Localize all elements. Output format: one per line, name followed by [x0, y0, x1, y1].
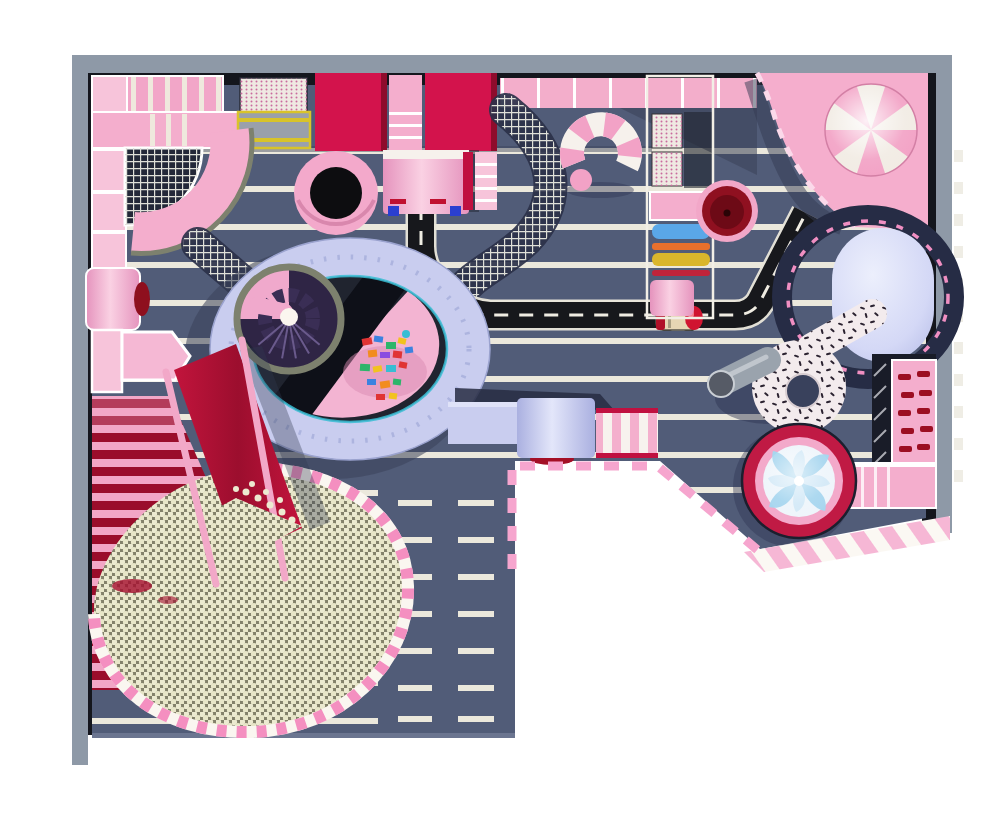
pink-tube-barrel — [383, 150, 497, 216]
giant-pinwheel-lollipop — [825, 84, 917, 176]
yellow-roller — [652, 253, 710, 266]
wall-tube-exit — [86, 268, 150, 330]
red-roller — [652, 270, 710, 276]
red-spinning-bowl — [696, 180, 758, 242]
candy-stripe-roller — [596, 413, 658, 455]
orange-roller — [652, 243, 710, 250]
vertical-bars-panel — [127, 76, 223, 112]
floor-plan-render — [0, 0, 1000, 819]
round-black-trampoline — [294, 151, 378, 235]
lavender-roller-cylinder — [517, 398, 595, 458]
climbing-wall-with-grips — [872, 354, 936, 476]
playground-floor-plan — [0, 0, 1000, 819]
pink-panels-row — [500, 78, 757, 108]
crimson-slide-boxes — [315, 73, 497, 151]
